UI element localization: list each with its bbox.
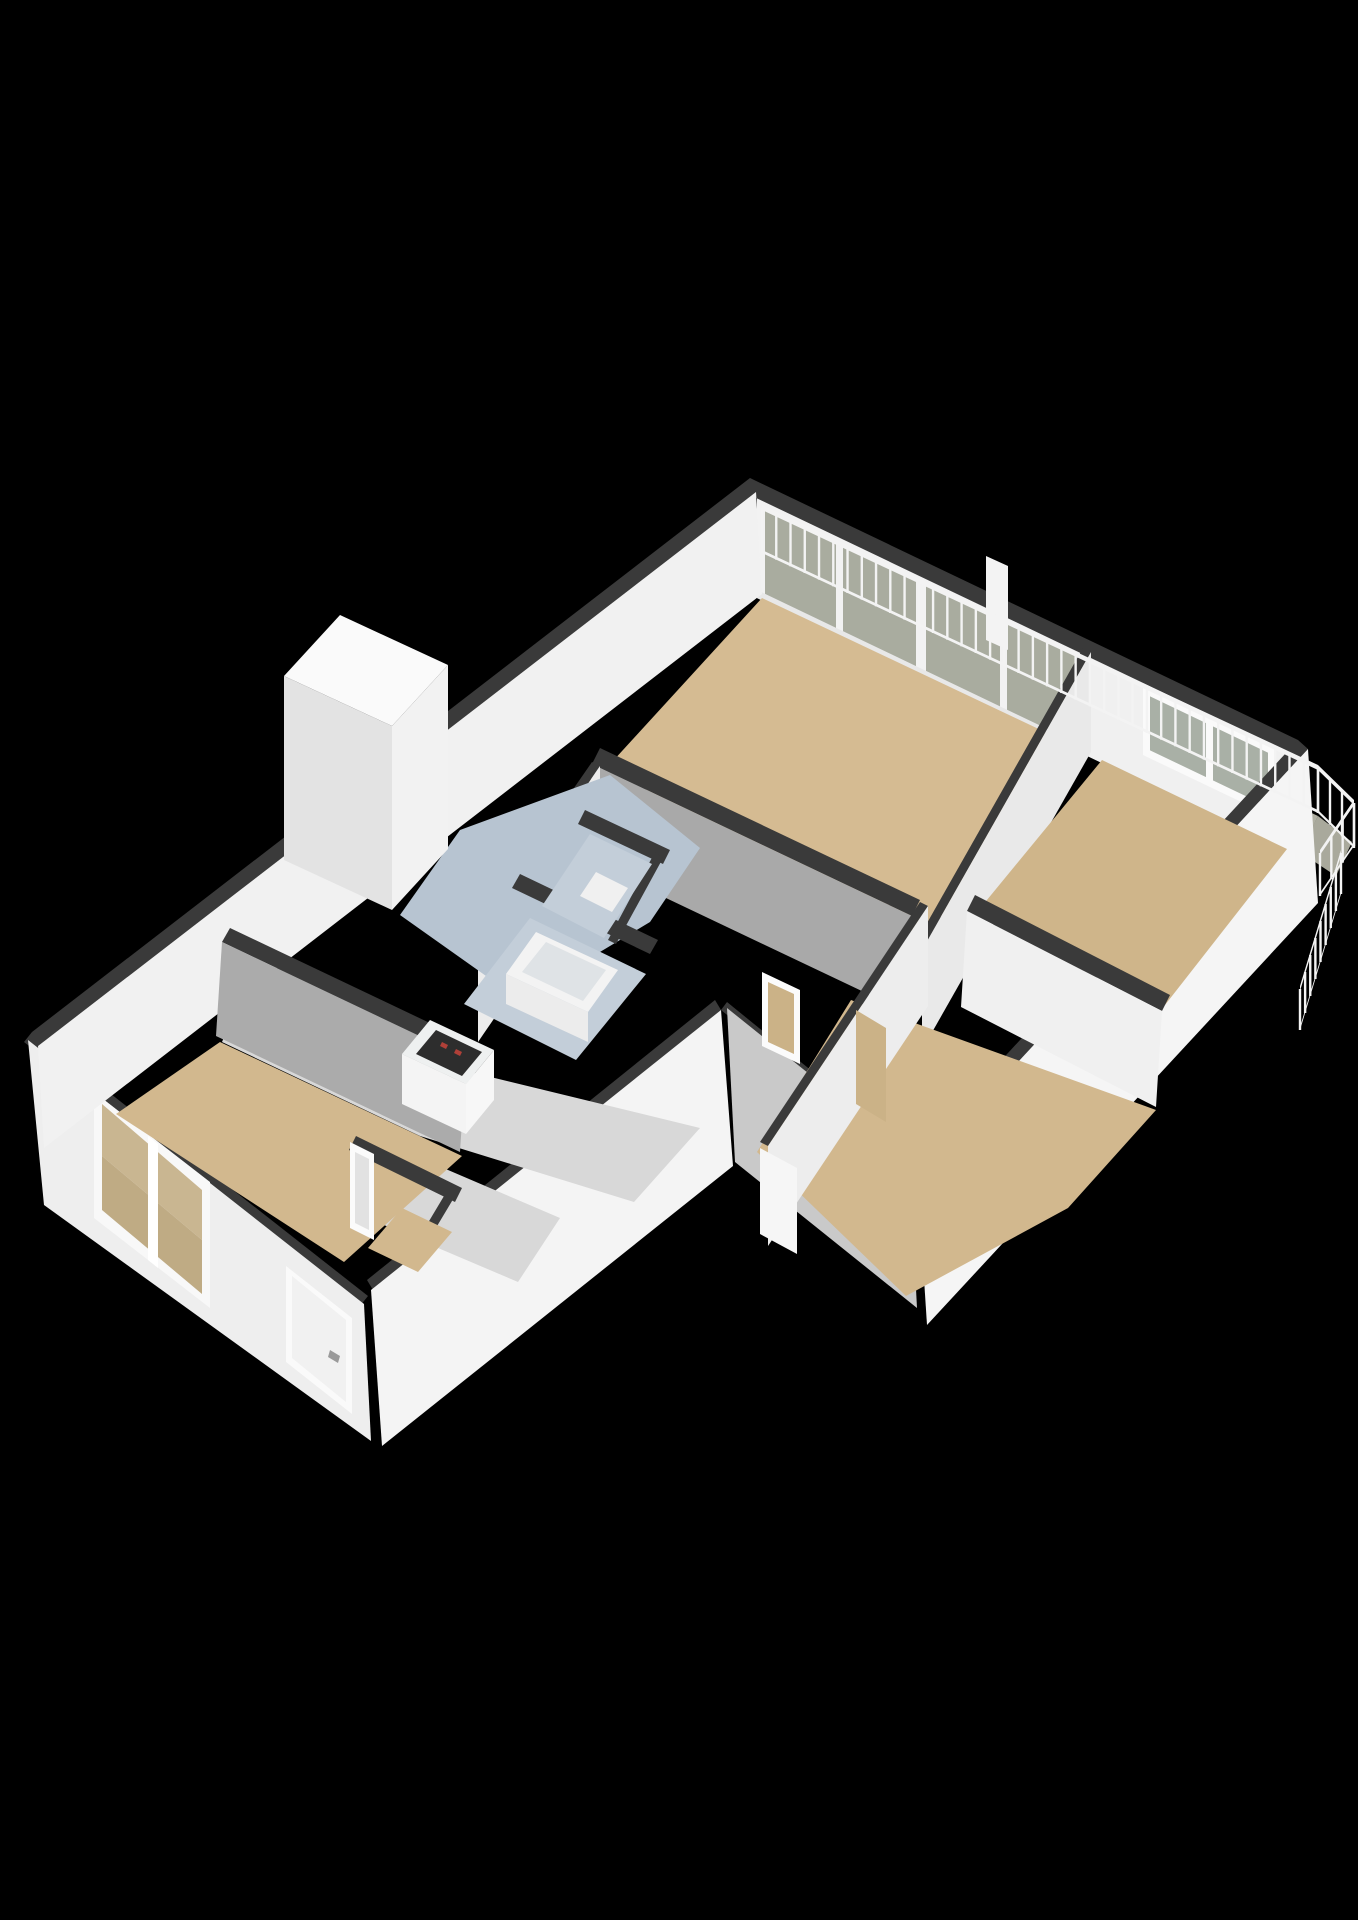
railing-post bbox=[1317, 768, 1319, 813]
railing-post bbox=[1353, 803, 1355, 846]
interior-door-opening-living-hall bbox=[768, 982, 794, 1054]
railing-post bbox=[789, 521, 791, 566]
railing-post bbox=[1314, 938, 1316, 979]
railing-top-rail bbox=[1318, 765, 1354, 805]
railing-post bbox=[918, 581, 920, 626]
railing-post bbox=[1299, 989, 1301, 1030]
railing-post bbox=[1260, 741, 1262, 786]
railing-post bbox=[1340, 853, 1342, 894]
railing-post bbox=[846, 548, 848, 593]
railing-post bbox=[1319, 853, 1321, 896]
railing-post bbox=[1319, 921, 1321, 962]
hall-door-opening bbox=[856, 1010, 886, 1122]
floorplan-svg bbox=[0, 0, 1358, 1920]
railing-post bbox=[1074, 655, 1076, 700]
railing-post bbox=[1089, 661, 1091, 706]
railing-post bbox=[1131, 681, 1133, 726]
railing-post bbox=[1288, 755, 1290, 800]
railing-post bbox=[1060, 648, 1062, 693]
railing-post bbox=[1274, 748, 1276, 793]
railing-post bbox=[832, 541, 834, 586]
left-window-mullion bbox=[148, 1136, 158, 1268]
railing-post bbox=[889, 568, 891, 613]
railing-post bbox=[1146, 688, 1148, 733]
railing-post bbox=[761, 508, 763, 553]
railing-post bbox=[1324, 904, 1326, 945]
railing-post bbox=[1203, 715, 1205, 760]
railing-post bbox=[1003, 621, 1005, 666]
railing-post bbox=[1160, 695, 1162, 740]
railing-post bbox=[1231, 728, 1233, 773]
railing-post bbox=[1117, 675, 1119, 720]
railing-post bbox=[1309, 955, 1311, 996]
railing-post bbox=[1335, 870, 1337, 911]
railing-post bbox=[1188, 708, 1190, 753]
railing-post bbox=[903, 575, 905, 620]
railing-post bbox=[1330, 887, 1332, 928]
railing-post bbox=[1017, 628, 1019, 673]
railing-post bbox=[989, 615, 991, 660]
railing-post bbox=[1329, 780, 1331, 825]
railing-post bbox=[804, 528, 806, 573]
railing-post bbox=[1174, 701, 1176, 746]
railing-post bbox=[1303, 761, 1305, 806]
railing-post bbox=[775, 515, 777, 560]
railing-post bbox=[1103, 668, 1105, 713]
railing-post bbox=[946, 595, 948, 640]
railing-post bbox=[1246, 735, 1248, 780]
bedroom-window-mullion bbox=[1206, 722, 1213, 784]
interior-door-leaf-corridor bbox=[355, 1152, 369, 1230]
railing-post bbox=[1046, 641, 1048, 686]
railing-post bbox=[932, 588, 934, 633]
railing-post bbox=[1330, 836, 1332, 879]
railing-post bbox=[975, 608, 977, 653]
railing-post bbox=[1032, 635, 1034, 680]
railing-post bbox=[1304, 972, 1306, 1013]
railing-post bbox=[960, 601, 962, 646]
railing-post bbox=[875, 561, 877, 606]
floorplan-3d-render bbox=[0, 0, 1358, 1920]
railing-post bbox=[1217, 721, 1219, 766]
railing-post bbox=[861, 555, 863, 600]
railing-post bbox=[818, 535, 820, 580]
